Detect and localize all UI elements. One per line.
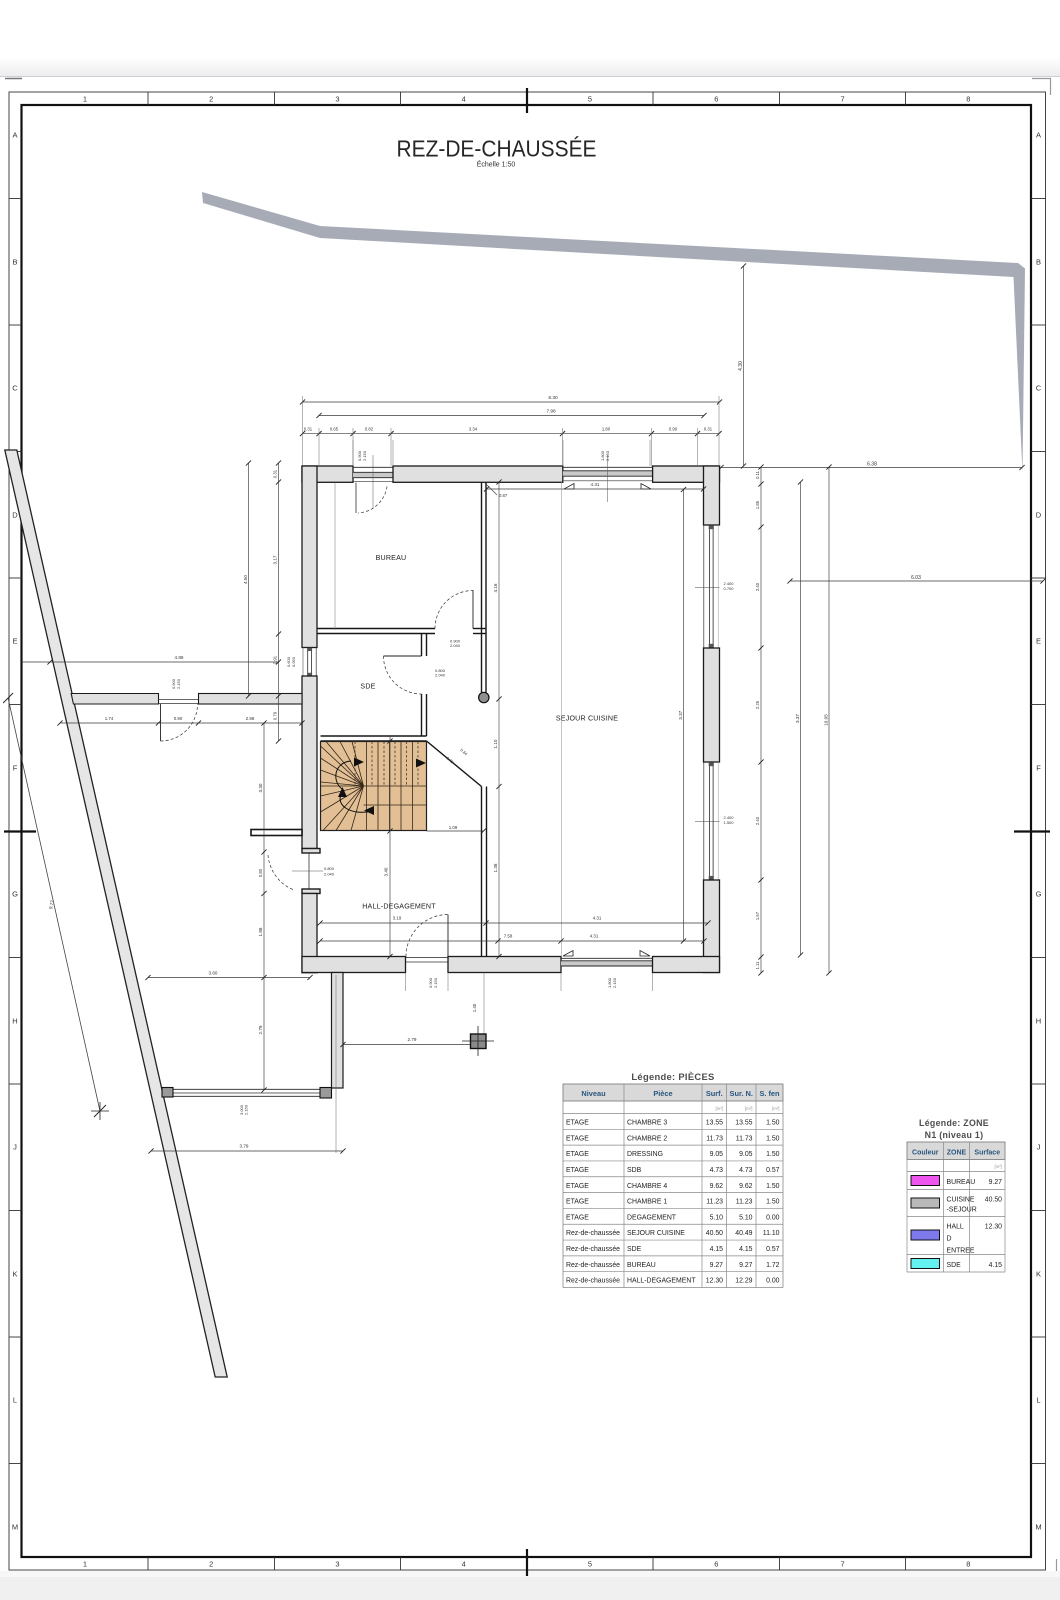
- svg-text:D: D: [12, 510, 18, 519]
- svg-text:CHAMBRE 2: CHAMBRE 2: [627, 1135, 667, 1142]
- svg-text:A: A: [1036, 131, 1041, 140]
- svg-text:3: 3: [335, 95, 339, 104]
- svg-text:40.50: 40.50: [706, 1230, 723, 1237]
- svg-text:ETAGE: ETAGE: [566, 1183, 589, 1190]
- svg-text:S. fen: S. fen: [759, 1089, 780, 1098]
- svg-text:0.82: 0.82: [365, 427, 374, 432]
- svg-text:H: H: [12, 1016, 17, 1025]
- svg-text:BUREAU: BUREAU: [627, 1262, 656, 1269]
- svg-text:2.150: 2.150: [433, 977, 438, 988]
- svg-text:1.67: 1.67: [755, 911, 760, 920]
- svg-text:11.23: 11.23: [736, 1199, 753, 1206]
- svg-text:1.40: 1.40: [472, 1003, 477, 1012]
- svg-text:0.57: 0.57: [766, 1167, 780, 1174]
- svg-text:ENTREE: ENTREE: [947, 1248, 975, 1255]
- svg-text:1.38: 1.38: [493, 863, 498, 872]
- svg-text:M: M: [1035, 1522, 1041, 1531]
- svg-text:3: 3: [335, 1560, 339, 1569]
- svg-text:HALL-DEGAGEMENT: HALL-DEGAGEMENT: [362, 903, 436, 911]
- svg-text:4: 4: [462, 1560, 466, 1569]
- svg-text:SEJOUR CUISINE: SEJOUR CUISINE: [627, 1230, 685, 1237]
- svg-text:0.79: 0.79: [273, 711, 278, 720]
- svg-text:L: L: [1036, 1396, 1040, 1405]
- svg-text:0.90: 0.90: [174, 716, 183, 721]
- svg-text:2.040: 2.040: [324, 872, 335, 877]
- svg-text:1.10: 1.10: [493, 739, 498, 748]
- svg-text:0.31: 0.31: [304, 427, 313, 432]
- svg-text:Pièce: Pièce: [653, 1089, 672, 1098]
- svg-text:2.79: 2.79: [408, 1037, 417, 1042]
- svg-text:2.98: 2.98: [246, 716, 255, 721]
- svg-text:11.10: 11.10: [763, 1230, 780, 1237]
- svg-text:8.30: 8.30: [548, 395, 558, 401]
- svg-text:[m²]: [m²]: [772, 1106, 780, 1111]
- svg-text:1.50: 1.50: [766, 1151, 780, 1158]
- svg-text:1.50: 1.50: [766, 1135, 780, 1142]
- svg-text:J: J: [1037, 1143, 1041, 1152]
- svg-text:ETAGE: ETAGE: [566, 1167, 589, 1174]
- svg-text:L: L: [13, 1396, 17, 1405]
- svg-text:SDE: SDE: [947, 1262, 962, 1269]
- svg-text:2.25: 2.25: [755, 700, 760, 709]
- svg-text:3.17: 3.17: [273, 555, 278, 564]
- svg-text:CUISINE: CUISINE: [947, 1197, 975, 1204]
- svg-text:1: 1: [83, 1560, 87, 1569]
- svg-text:6.03: 6.03: [911, 575, 921, 581]
- svg-text:6.38: 6.38: [867, 462, 877, 468]
- svg-text:2.150: 2.150: [362, 450, 367, 461]
- svg-text:[m²]: [m²]: [715, 1106, 723, 1111]
- svg-text:9.05: 9.05: [710, 1151, 724, 1158]
- svg-text:C: C: [1036, 384, 1042, 393]
- svg-text:11.23: 11.23: [706, 1199, 723, 1206]
- svg-text:Échelle 1:50: Échelle 1:50: [477, 160, 516, 169]
- svg-text:D: D: [1036, 510, 1042, 519]
- svg-text:5: 5: [588, 95, 592, 104]
- svg-text:M: M: [12, 1522, 18, 1531]
- svg-text:CHAMBRE 1: CHAMBRE 1: [627, 1199, 667, 1206]
- svg-text:4.31: 4.31: [593, 916, 602, 921]
- svg-text:CHAMBRE 4: CHAMBRE 4: [627, 1183, 667, 1190]
- svg-text:12.30: 12.30: [985, 1224, 1002, 1231]
- svg-text:Rez-de-chaussée: Rez-de-chaussée: [566, 1262, 620, 1269]
- svg-text:6: 6: [714, 95, 718, 104]
- svg-text:2: 2: [209, 95, 213, 104]
- svg-text:9.27: 9.27: [989, 1179, 1003, 1186]
- svg-text:SDE: SDE: [360, 683, 375, 691]
- svg-text:3.37: 3.37: [795, 714, 800, 723]
- svg-text:9.27: 9.27: [739, 1262, 753, 1269]
- svg-text:Légende: ZONE: Légende: ZONE: [919, 1118, 989, 1128]
- svg-text:2.79: 2.79: [258, 1025, 263, 1034]
- svg-text:N1 (niveau 1): N1 (niveau 1): [925, 1130, 984, 1140]
- svg-text:DEGAGEMENT: DEGAGEMENT: [627, 1214, 677, 1221]
- svg-text:1.11: 1.11: [755, 961, 760, 970]
- svg-text:ETAGE: ETAGE: [566, 1120, 589, 1127]
- svg-text:5.10: 5.10: [739, 1214, 753, 1221]
- svg-text:0.00: 0.00: [766, 1214, 780, 1221]
- svg-text:9.62: 9.62: [710, 1183, 724, 1190]
- svg-text:0.31: 0.31: [704, 427, 713, 432]
- svg-text:7: 7: [841, 1560, 845, 1569]
- svg-text:1.500: 1.500: [724, 820, 735, 825]
- svg-text:ZONE: ZONE: [947, 1150, 967, 1157]
- svg-text:7.98: 7.98: [546, 409, 556, 415]
- svg-text:0.80: 0.80: [258, 868, 263, 877]
- svg-text:5.10: 5.10: [710, 1214, 724, 1221]
- svg-text:Rez-de-chaussée: Rez-de-chaussée: [566, 1278, 620, 1285]
- svg-text:REZ-DE-CHAUSSÉE: REZ-DE-CHAUSSÉE: [397, 136, 597, 162]
- svg-text:2.40: 2.40: [755, 582, 760, 591]
- svg-text:Surf.: Surf.: [706, 1089, 723, 1098]
- svg-text:2.40: 2.40: [755, 816, 760, 825]
- svg-text:2.150: 2.150: [612, 977, 617, 988]
- svg-text:9.62: 9.62: [739, 1183, 753, 1190]
- svg-text:12.29: 12.29: [735, 1278, 752, 1285]
- svg-text:9.27: 9.27: [710, 1262, 724, 1269]
- svg-text:3.40: 3.40: [384, 867, 389, 876]
- svg-text:4.89: 4.89: [175, 655, 184, 660]
- svg-text:1.50: 1.50: [766, 1120, 780, 1127]
- svg-text:9.05: 9.05: [739, 1151, 753, 1158]
- svg-text:0.00: 0.00: [766, 1278, 780, 1285]
- svg-text:4: 4: [462, 95, 466, 104]
- svg-text:2.040: 2.040: [450, 643, 461, 648]
- svg-text:40.50: 40.50: [985, 1197, 1002, 1204]
- svg-text:E: E: [1036, 637, 1041, 646]
- svg-text:H: H: [1036, 1016, 1041, 1025]
- svg-text:2.040: 2.040: [435, 673, 446, 678]
- svg-text:4.30: 4.30: [738, 361, 744, 371]
- svg-text:0.91: 0.91: [273, 655, 278, 664]
- svg-text:G: G: [1036, 890, 1042, 899]
- svg-text:13.55: 13.55: [706, 1120, 723, 1127]
- svg-text:HALL-DEGAGEMENT: HALL-DEGAGEMENT: [627, 1278, 696, 1285]
- svg-text:11.73: 11.73: [736, 1135, 753, 1142]
- svg-text:13.55: 13.55: [735, 1120, 752, 1127]
- svg-text:SDB: SDB: [627, 1167, 642, 1174]
- svg-text:G: G: [12, 890, 18, 899]
- svg-text:40.49: 40.49: [735, 1230, 752, 1237]
- svg-text:10.05: 10.05: [824, 714, 829, 726]
- svg-text:0.87: 0.87: [499, 493, 508, 498]
- svg-text:0.950: 0.950: [291, 656, 296, 667]
- svg-text:B: B: [1036, 257, 1041, 266]
- svg-text:6: 6: [714, 1560, 718, 1569]
- svg-text:11.73: 11.73: [706, 1135, 723, 1142]
- svg-text:[m²]: [m²]: [745, 1106, 753, 1111]
- svg-text:Rez-de-chaussée: Rez-de-chaussée: [566, 1230, 620, 1237]
- svg-text:B: B: [12, 257, 17, 266]
- svg-text:K: K: [1036, 1269, 1041, 1278]
- svg-text:D: D: [947, 1236, 952, 1243]
- svg-text:4.16: 4.16: [493, 583, 498, 592]
- svg-text:3.34: 3.34: [469, 427, 478, 432]
- svg-text:Niveau: Niveau: [581, 1089, 606, 1098]
- svg-text:7: 7: [841, 95, 845, 104]
- svg-text:E: E: [12, 637, 17, 646]
- svg-text:1.09: 1.09: [449, 825, 458, 830]
- svg-text:0.90: 0.90: [669, 427, 678, 432]
- svg-text:CHAMBRE 3: CHAMBRE 3: [627, 1120, 667, 1127]
- svg-text:4.73: 4.73: [710, 1167, 724, 1174]
- svg-text:0.11: 0.11: [755, 470, 760, 479]
- svg-text:2: 2: [209, 1560, 213, 1569]
- svg-text:3.19: 3.19: [393, 916, 402, 921]
- svg-text:1: 1: [83, 95, 87, 104]
- svg-text:1.74: 1.74: [105, 716, 114, 721]
- svg-text:3.30: 3.30: [258, 783, 263, 792]
- svg-text:0.31: 0.31: [273, 469, 278, 478]
- svg-text:1.88: 1.88: [258, 927, 263, 936]
- svg-text:12.30: 12.30: [706, 1278, 723, 1285]
- svg-text:SDE: SDE: [627, 1246, 642, 1253]
- svg-text:4.15: 4.15: [710, 1246, 724, 1253]
- svg-text:F: F: [13, 763, 18, 772]
- svg-text:4.15: 4.15: [989, 1262, 1003, 1269]
- svg-text:8: 8: [966, 1560, 970, 1569]
- svg-text:HALL: HALL: [947, 1224, 964, 1231]
- svg-text:0.700: 0.700: [724, 586, 735, 591]
- svg-text:4.31: 4.31: [590, 934, 599, 939]
- svg-text:7.58: 7.58: [504, 934, 513, 939]
- svg-text:4.15: 4.15: [739, 1246, 753, 1253]
- svg-text:Sur. N.: Sur. N.: [730, 1089, 753, 1098]
- svg-text:3.37: 3.37: [678, 710, 683, 719]
- svg-text:A: A: [12, 131, 17, 140]
- svg-text:8: 8: [966, 95, 970, 104]
- svg-text:1.80: 1.80: [602, 427, 611, 432]
- svg-text:BUREAU: BUREAU: [947, 1179, 976, 1186]
- svg-text:-SEJOUR: -SEJOUR: [947, 1207, 977, 1214]
- svg-text:C: C: [12, 384, 18, 393]
- svg-text:ETAGE: ETAGE: [566, 1151, 589, 1158]
- svg-text:3.79: 3.79: [240, 1144, 249, 1149]
- svg-text:1.85: 1.85: [755, 500, 760, 509]
- svg-text:SEJOUR CUISINE: SEJOUR CUISINE: [556, 715, 618, 723]
- svg-text:DRESSING: DRESSING: [627, 1151, 663, 1158]
- svg-text:Rez-de-chaussée: Rez-de-chaussée: [566, 1246, 620, 1253]
- svg-text:1.50: 1.50: [766, 1199, 780, 1206]
- svg-text:0.800: 0.800: [324, 866, 335, 871]
- svg-text:J: J: [13, 1143, 17, 1152]
- svg-text:5: 5: [588, 1560, 592, 1569]
- svg-text:4.31: 4.31: [591, 482, 600, 487]
- svg-text:ETAGE: ETAGE: [566, 1135, 589, 1142]
- svg-text:Surface: Surface: [974, 1150, 1000, 1157]
- svg-text:1.50: 1.50: [766, 1183, 780, 1190]
- svg-text:0.65: 0.65: [330, 427, 339, 432]
- svg-text:2.150: 2.150: [244, 1104, 249, 1115]
- svg-text:K: K: [12, 1269, 17, 1278]
- svg-text:4.50: 4.50: [243, 575, 248, 584]
- svg-text:BUREAU: BUREAU: [376, 554, 407, 562]
- svg-text:[m²]: [m²]: [994, 1164, 1002, 1169]
- svg-text:4.73: 4.73: [739, 1167, 753, 1174]
- svg-text:1.72: 1.72: [766, 1262, 780, 1269]
- svg-text:ETAGE: ETAGE: [566, 1199, 589, 1206]
- svg-text:F: F: [1036, 763, 1041, 772]
- svg-text:0.57: 0.57: [766, 1246, 780, 1253]
- svg-text:ETAGE: ETAGE: [566, 1214, 589, 1221]
- svg-text:Couleur: Couleur: [912, 1150, 939, 1157]
- svg-text:2.150: 2.150: [176, 678, 181, 689]
- svg-text:3.60: 3.60: [209, 971, 218, 976]
- svg-text:Légende: PIÈCES: Légende: PIÈCES: [631, 1071, 714, 1082]
- svg-text:2.150: 2.150: [605, 450, 610, 461]
